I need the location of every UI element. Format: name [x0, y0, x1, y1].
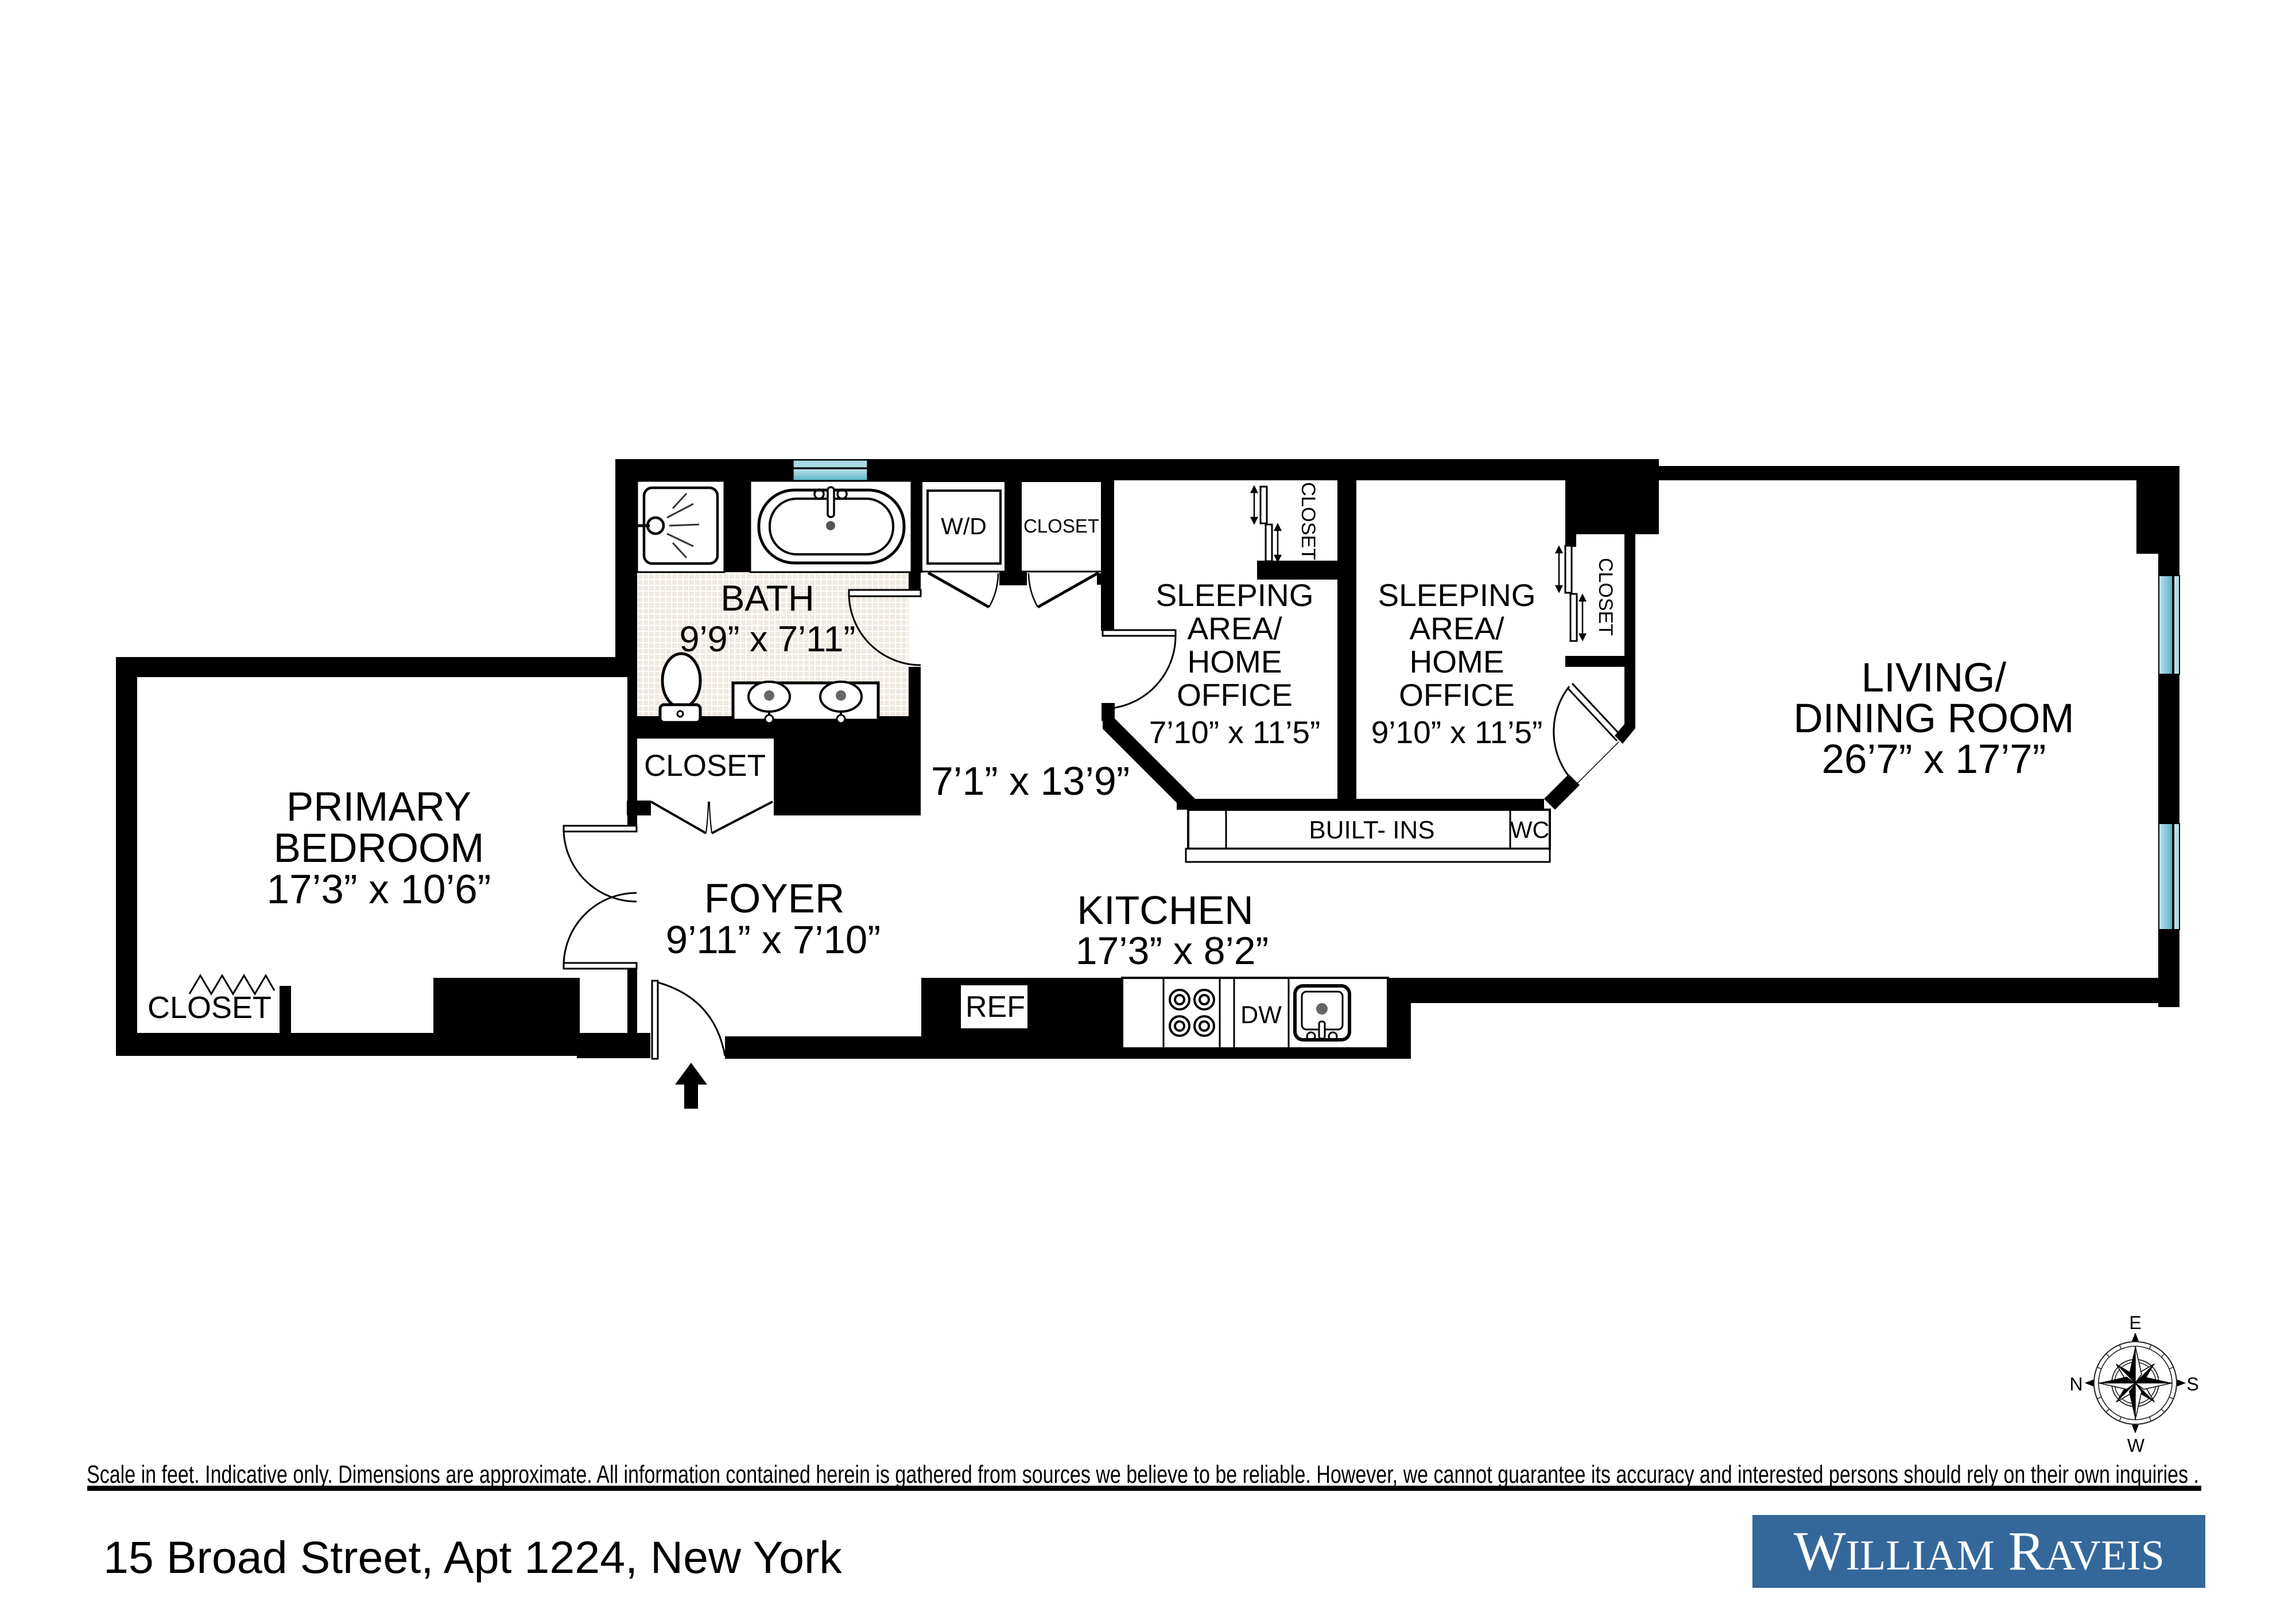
svg-text:BUILT- INS: BUILT- INS: [1309, 816, 1434, 844]
svg-text:BATH: BATH: [720, 578, 814, 619]
svg-text:17’3” x 10’6”: 17’3” x 10’6”: [267, 867, 491, 912]
svg-text:AREA/: AREA/: [1187, 611, 1282, 646]
svg-text:CLOSET: CLOSET: [1595, 558, 1616, 636]
svg-text:W: W: [2127, 1435, 2145, 1456]
svg-text:SLEEPING: SLEEPING: [1378, 577, 1535, 613]
svg-text:N: N: [2069, 1374, 2082, 1394]
svg-text:KITCHEN: KITCHEN: [1077, 888, 1253, 933]
svg-text:OFFICE: OFFICE: [1399, 677, 1515, 713]
svg-text:CLOSET: CLOSET: [644, 749, 766, 783]
svg-text:WC: WC: [1510, 817, 1549, 843]
svg-text:CLOSET: CLOSET: [1023, 515, 1099, 537]
svg-text:9’11” x 7’10”: 9’11” x 7’10”: [666, 918, 881, 962]
svg-text:HOME: HOME: [1410, 644, 1504, 679]
svg-text:CLOSET: CLOSET: [148, 990, 272, 1025]
svg-text:SLEEPING: SLEEPING: [1155, 577, 1313, 613]
svg-text:PRIMARY: PRIMARY: [286, 784, 471, 830]
svg-text:FOYER: FOYER: [704, 876, 845, 922]
svg-text:OFFICE: OFFICE: [1177, 677, 1293, 713]
svg-text:17’3” x 8’2”: 17’3” x 8’2”: [1076, 929, 1269, 973]
svg-text:REF: REF: [965, 990, 1025, 1024]
svg-text:CLOSET: CLOSET: [1297, 482, 1319, 560]
svg-text:LIVING/: LIVING/: [1861, 655, 2007, 701]
svg-text:HOME: HOME: [1188, 644, 1282, 679]
svg-text:BEDROOM: BEDROOM: [274, 826, 484, 871]
svg-text:Scale in feet. Indicative only: Scale in feet. Indicative only. Dimensio…: [87, 1460, 2199, 1489]
svg-text:9’10” x 11’5”: 9’10” x 11’5”: [1371, 714, 1543, 750]
svg-text:DINING ROOM: DINING ROOM: [1793, 696, 2074, 741]
svg-text:W/D: W/D: [941, 513, 987, 539]
svg-text:DW: DW: [1240, 1001, 1282, 1029]
svg-text:7’1” x 13’9”: 7’1” x 13’9”: [931, 759, 1130, 803]
svg-text:S: S: [2186, 1374, 2198, 1394]
svg-text:15 Broad Street, Apt 1224, New: 15 Broad Street, Apt 1224, New York: [103, 1532, 842, 1583]
svg-text:AREA/: AREA/: [1409, 611, 1504, 646]
svg-text:9’9” x 7’11”: 9’9” x 7’11”: [680, 619, 856, 659]
svg-text:26’7” x 17’7”: 26’7” x 17’7”: [1822, 737, 2046, 782]
svg-text:7’10” x 11’5”: 7’10” x 11’5”: [1149, 714, 1321, 750]
svg-text:E: E: [2129, 1312, 2141, 1333]
